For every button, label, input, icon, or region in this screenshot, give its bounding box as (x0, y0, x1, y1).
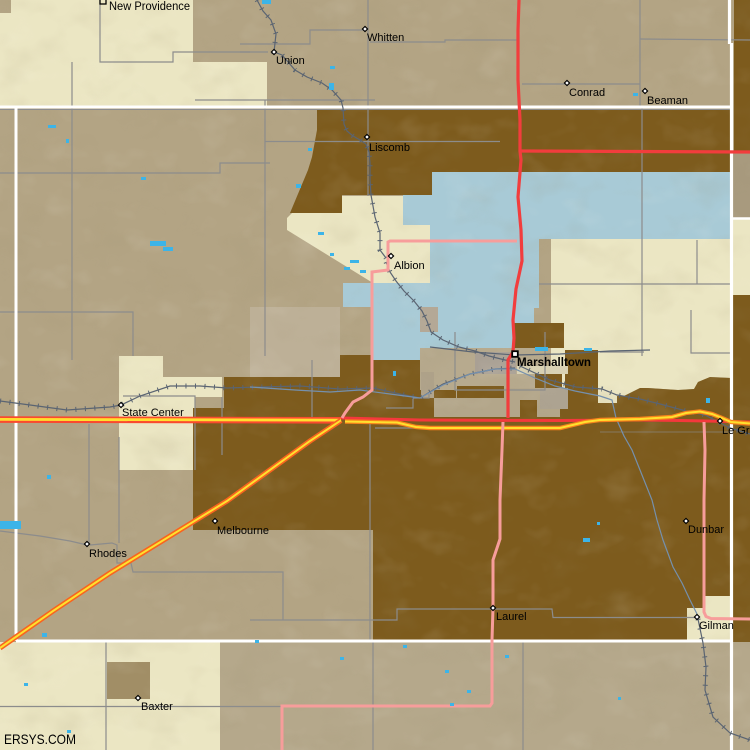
svg-text:Laurel: Laurel (496, 611, 527, 623)
svg-text:Marshalltown: Marshalltown (517, 357, 591, 369)
svg-text:Whitten: Whitten (367, 32, 404, 44)
svg-text:Liscomb: Liscomb (369, 142, 410, 154)
svg-text:State Center: State Center (122, 407, 184, 419)
svg-text:Baxter: Baxter (141, 701, 173, 713)
svg-text:Conrad: Conrad (569, 87, 605, 99)
svg-text:ERSYS.COM: ERSYS.COM (4, 731, 76, 747)
svg-text:Le Gra: Le Gra (722, 425, 750, 437)
svg-text:Beaman: Beaman (647, 95, 688, 107)
svg-text:Melbourne: Melbourne (217, 525, 269, 537)
svg-text:Albion: Albion (394, 260, 425, 272)
svg-text:New Providence: New Providence (109, 1, 190, 13)
svg-text:Gilman: Gilman (699, 620, 734, 632)
svg-text:Dunbar: Dunbar (688, 524, 724, 536)
svg-text:Union: Union (276, 55, 305, 67)
svg-text:Rhodes: Rhodes (89, 548, 127, 560)
